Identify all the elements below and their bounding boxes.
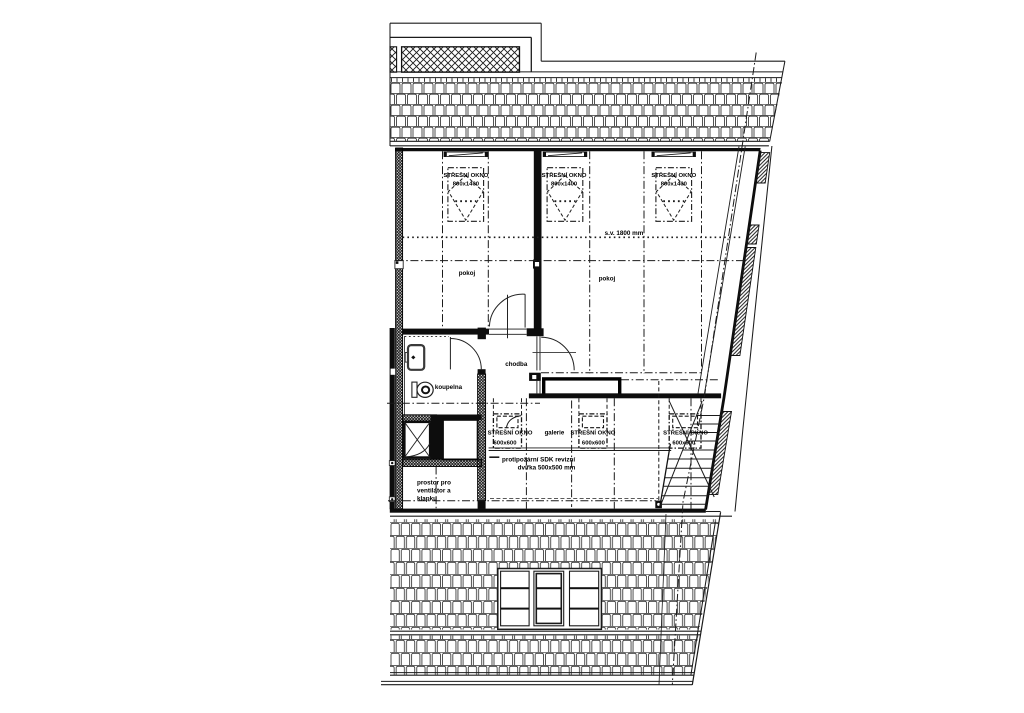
svg-text:s.v. 1800 mm: s.v. 1800 mm xyxy=(605,230,644,237)
svg-text:pokoj: pokoj xyxy=(459,270,476,277)
svg-text:600x600: 600x600 xyxy=(494,440,518,446)
svg-text:800x1400: 800x1400 xyxy=(453,182,480,188)
svg-text:klapku: klapku xyxy=(417,496,437,503)
svg-text:dvířka 500x500 mm: dvířka 500x500 mm xyxy=(518,464,576,471)
svg-text:800x1400: 800x1400 xyxy=(661,182,688,188)
svg-text:STŘEŠNÍ OKNO: STŘEŠNÍ OKNO xyxy=(570,428,615,436)
svg-text:protipožární SDK revizní: protipožární SDK revizní xyxy=(502,456,575,463)
svg-text:koupelna: koupelna xyxy=(435,384,463,391)
svg-text:STŘEŠNÍ OKNO: STŘEŠNÍ OKNO xyxy=(542,171,587,179)
svg-text:galerie: galerie xyxy=(545,430,565,437)
svg-text:STŘEŠNÍ OKNO: STŘEŠNÍ OKNO xyxy=(488,428,533,436)
svg-text:600x600: 600x600 xyxy=(582,440,606,446)
svg-text:STŘEŠNÍ OKNO: STŘEŠNÍ OKNO xyxy=(663,429,708,437)
svg-text:800x1400: 800x1400 xyxy=(551,182,578,188)
svg-text:pokoj: pokoj xyxy=(599,276,616,283)
svg-text:600x600: 600x600 xyxy=(672,440,696,446)
svg-text:STŘEŠNÍ OKNO: STŘEŠNÍ OKNO xyxy=(443,171,488,179)
svg-text:chodba: chodba xyxy=(505,361,528,368)
svg-text:STŘEŠNÍ OKNO: STŘEŠNÍ OKNO xyxy=(651,171,696,179)
svg-text:ventilátor a: ventilátor a xyxy=(417,488,451,495)
svg-text:prostor pro: prostor pro xyxy=(417,480,451,487)
